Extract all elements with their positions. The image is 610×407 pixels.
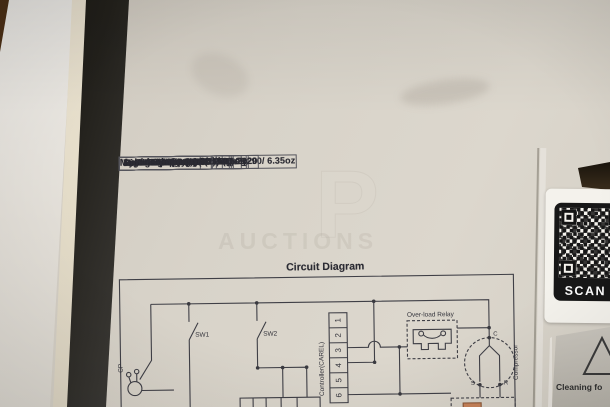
wire-terminal3-branch bbox=[347, 346, 451, 394]
spec-cell-dimension: Dimension(mm):700x720x2020 bbox=[119, 155, 259, 171]
compressor-windings bbox=[479, 338, 500, 382]
relay-contact bbox=[441, 331, 446, 336]
sw1-label: SW1 bbox=[195, 332, 210, 339]
qr-frame: SCAN bbox=[554, 203, 610, 302]
terminal-3: 3 bbox=[334, 347, 343, 352]
circuit-diagram: CP SW1 SW2 1 2 3 4 5 6 Control bbox=[116, 271, 522, 407]
terminal-r-label: R bbox=[504, 380, 509, 386]
junction-dot bbox=[373, 360, 377, 364]
capacitor-body bbox=[463, 403, 481, 407]
junction-dot bbox=[256, 366, 260, 370]
junction-dot bbox=[487, 326, 491, 330]
terminal-5: 5 bbox=[334, 377, 343, 382]
qr-finder-icon bbox=[561, 261, 576, 276]
junction-dot bbox=[398, 392, 402, 396]
relay-arc bbox=[423, 334, 441, 338]
warning-triangle-icon bbox=[580, 334, 610, 378]
switch-sw1 bbox=[189, 304, 200, 407]
bottom-terminal-block bbox=[240, 397, 321, 407]
junction-dot bbox=[398, 345, 402, 349]
wire-sw2-branch bbox=[258, 367, 307, 398]
spec-sheet: Multideck Open Chiller Model: 189WVAC28H… bbox=[0, 0, 610, 407]
compressor-label: Compressor bbox=[512, 344, 520, 380]
cp-prong-tip bbox=[134, 369, 138, 373]
junction-dot bbox=[281, 366, 285, 370]
junction-dot bbox=[372, 299, 376, 303]
wire-terminal4 bbox=[347, 301, 375, 362]
junction-dot bbox=[305, 365, 309, 369]
terminal-6: 6 bbox=[334, 392, 343, 397]
terminal-4: 4 bbox=[334, 362, 343, 367]
capacitor-box bbox=[451, 397, 515, 407]
cp-prong-tip bbox=[126, 372, 130, 376]
junction-dot bbox=[255, 301, 259, 305]
circuit-border bbox=[119, 274, 515, 407]
relay-contact bbox=[419, 331, 424, 336]
overload-relay-label: Over-load Relay bbox=[407, 311, 455, 319]
controller-label: Controller(CAREL) bbox=[318, 342, 326, 396]
junction-dot bbox=[187, 302, 191, 306]
terminal-c-label: C bbox=[493, 332, 498, 338]
sw2-label: SW2 bbox=[263, 331, 278, 338]
qr-code-icon bbox=[559, 208, 610, 279]
scan-label: SCAN bbox=[554, 284, 610, 299]
qr-sticker: SCAN bbox=[544, 189, 610, 324]
terminal-s-label: S bbox=[471, 381, 475, 387]
terminal-1: 1 bbox=[333, 317, 342, 322]
cp-plug-body bbox=[128, 382, 142, 396]
terminal-2: 2 bbox=[334, 332, 343, 337]
cleaning-label-text: Cleaning fo bbox=[556, 382, 602, 392]
spec-table: Multideck Open Chiller Model: 189WVAC28H… bbox=[119, 151, 529, 157]
qr-finder-icon bbox=[561, 210, 576, 225]
cp-label: CP bbox=[118, 364, 125, 373]
wire-cp bbox=[139, 304, 152, 379]
photo-chiller-spec-label: Multideck Open Chiller Model: 189WVAC28H… bbox=[0, 0, 610, 407]
overload-relay-box bbox=[407, 320, 458, 359]
bottom-terminal-dividers bbox=[253, 397, 298, 407]
